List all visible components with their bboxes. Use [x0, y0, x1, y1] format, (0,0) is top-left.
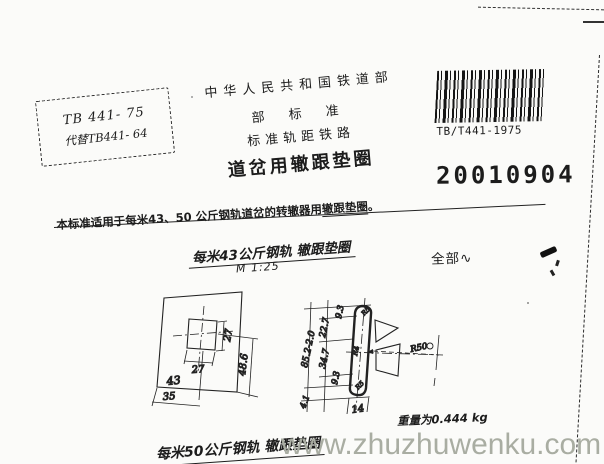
dim-hole-width: 27 [190, 364, 205, 376]
ink-blob [540, 246, 558, 258]
surface-all-label: 全部 [431, 251, 461, 268]
scope-paragraph: 本标准适用于每米43、50 公斤钢轨道岔的转辙器用辙跟垫圈。 [56, 193, 456, 233]
ext-line [216, 350, 225, 351]
figure-43-scale: M 1:25 [236, 259, 281, 275]
fillet-mid: R4 [351, 345, 361, 357]
ext-line [218, 321, 227, 322]
scope-emphasis: 辙跟垫圈 [321, 199, 368, 217]
plan-centerline-v [198, 306, 204, 373]
scanned-standard-page: TB 441- 75 代替TB441- 64 中华人民共和国铁道部 部 标 准 … [0, 0, 604, 464]
dim-seg-upper: 22.7 [318, 317, 332, 340]
registration-number: 20010904 [436, 160, 576, 189]
dim-plan-height: 48.6 [237, 352, 251, 377]
ext-line [184, 350, 187, 364]
break-wedge-upper [375, 320, 398, 342]
barcode-image [435, 69, 546, 123]
dim-line [184, 361, 213, 363]
ext-line [434, 378, 435, 386]
section-view: 85.2-2.0 9.3 22.7 34.7 9.3 4.1 14 R50 R5… [298, 298, 443, 416]
barcode-block: TB/T441-1975 [435, 69, 546, 138]
issuing-authority: 中华人民共和国铁道部 [166, 62, 433, 104]
replaces-code: 代替TB441- 64 [64, 125, 148, 150]
ext-line [212, 352, 215, 366]
dim-thickness: 14 [351, 403, 365, 416]
technical-drawing: 27 27 43 35 48.6 [121, 278, 471, 430]
ext-line [304, 385, 353, 388]
dim-radius-leader: R50 [409, 341, 429, 355]
surface-roughness-icon: ∿ [460, 250, 473, 266]
watermark-text: www.zhuzhuwenku.com [281, 428, 601, 462]
dim-line [152, 402, 200, 406]
break-wedge-lower [376, 344, 400, 376]
dim-line [249, 339, 253, 397]
dim-seg-bottom: 4.1 [298, 394, 312, 411]
scan-speck [527, 302, 529, 304]
ext-line [319, 339, 353, 342]
dim-plan-offset: 35 [162, 391, 175, 403]
dim-overall: 85.2-2.0 [300, 330, 318, 369]
weight-note: 重量为0.444 kg [397, 409, 488, 429]
page-edge-line-right [575, 55, 600, 464]
dim-seg-lower: 9.3 [330, 370, 343, 385]
surface-finish-note: 全部∿ [431, 246, 473, 267]
ext-line [152, 388, 157, 406]
ext-line [237, 392, 258, 397]
scope-period: 。 [367, 199, 379, 214]
barcode-label: TB/T441-1975 [436, 123, 546, 138]
dim-seg-mid: 34.7 [318, 348, 332, 370]
page-edge-dash-top [478, 7, 604, 11]
ext-line [436, 335, 439, 370]
ink-mark [550, 270, 555, 276]
leader-circle [427, 343, 433, 349]
ext-line [367, 396, 369, 412]
plan-view: 27 27 43 35 48.6 [152, 292, 258, 406]
scan-speck [191, 96, 193, 98]
standard-code: TB 441- 75 [62, 105, 145, 129]
standard-number-stamp: TB 441- 75 代替TB441- 64 [35, 87, 175, 167]
ext-line [347, 398, 349, 414]
scope-text: 本标准适用于每米43、50 公斤钢轨道岔的转辙器用 [56, 202, 322, 232]
page-edge-dash-top-short [583, 21, 604, 23]
dim-plan-width: 43 [165, 374, 181, 388]
ink-mark [555, 260, 559, 266]
fillet-bottom: R5 [353, 379, 366, 392]
